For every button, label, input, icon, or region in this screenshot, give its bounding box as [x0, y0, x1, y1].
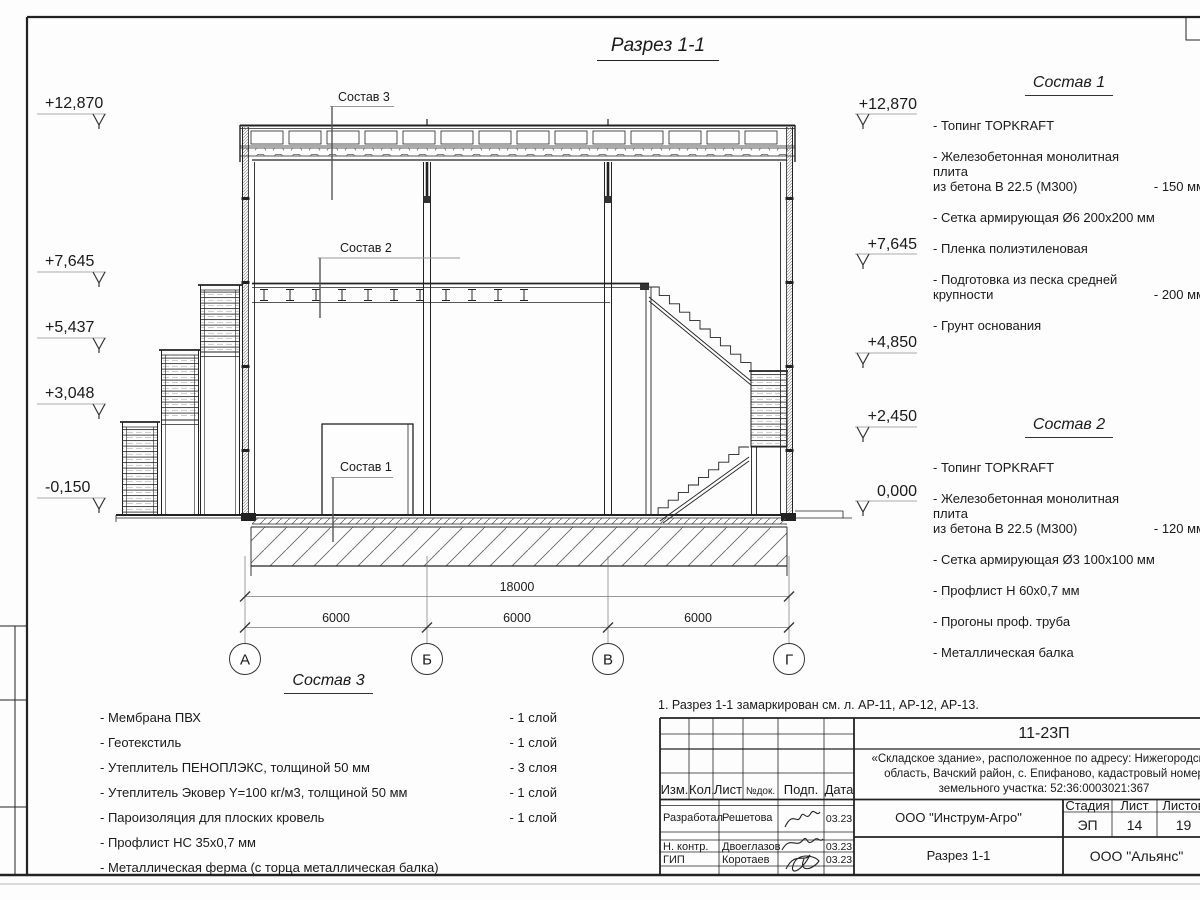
composition-item: - Грунт основания: [933, 318, 1200, 333]
dim-bay-1: 6000: [322, 611, 350, 625]
svg-text:0,000: 0,000: [877, 483, 917, 500]
column-B: [424, 162, 431, 515]
svg-text:+4,850: +4,850: [868, 334, 917, 351]
row-name-1: Двоеглазов: [722, 841, 780, 854]
composition-item: - Топинг TOPKRAFT: [933, 118, 1200, 133]
sostav-2-items: - Топинг TOPKRAFT- Железобетонная моноли…: [933, 460, 1200, 660]
left-wall: [241, 127, 256, 521]
composition-item-text: - Профлист НС 35x0,7 мм: [100, 835, 256, 850]
axis-label-G: Г: [785, 652, 793, 669]
row-date-2: 03.23: [824, 854, 854, 866]
composition-item-value: - 1 слой: [501, 735, 557, 750]
composition-item-text: - Профлист Н 60x0,7 мм: [933, 583, 1080, 598]
page-title: Разрез 1-1: [597, 35, 719, 61]
dimension-lines: [240, 556, 794, 643]
composition-item-text: - Сетка армирующая Ø3 100x100 мм: [933, 552, 1155, 567]
left-margin-stamp: [0, 626, 27, 875]
dim-overall: 18000: [500, 580, 535, 594]
composition-item: - Металлическая балка: [933, 645, 1200, 660]
composition-item-text: - Топинг TOPKRAFT: [933, 460, 1054, 475]
svg-text:+7,645: +7,645: [45, 253, 94, 270]
composition-item: - Железобетонная монолитная плита из бет…: [933, 491, 1200, 536]
composition-item-value: - 1 слой: [501, 785, 557, 800]
axis-label-B: Б: [422, 652, 432, 669]
right-wall: [781, 127, 797, 521]
composition-item-text: - Топинг TOPKRAFT: [933, 118, 1054, 133]
sheet-label: Лист: [1112, 800, 1157, 812]
sostav-1-block: Состав 1 - Топинг TOPKRAFT- Железобетонн…: [933, 74, 1200, 349]
svg-text:+7,645: +7,645: [868, 236, 917, 253]
composition-item: - Утеплитель Эковер Y=100 кг/м3, толщино…: [100, 785, 557, 800]
composition-item: - Железобетонная монолитная плита из бет…: [933, 149, 1200, 194]
composition-item-text: - Грунт основания: [933, 318, 1041, 333]
composition-item-value: - 1 слой: [501, 710, 557, 725]
sheet-number: 14: [1112, 817, 1157, 833]
leader-lines: [318, 107, 460, 543]
stepped-towers: [120, 285, 242, 515]
elevation-marks-right: +12,870 +7,645 +4,850 +2,450 0,000: [855, 96, 917, 516]
project-description: «Складское здание», расположенное по адр…: [856, 752, 1200, 797]
mezzanine-edge-post: [646, 287, 651, 515]
composition-item-text: - Пленка полиэтиленовая: [933, 241, 1088, 256]
svg-text:+12,870: +12,870: [45, 95, 103, 112]
row-role-2: ГИП: [663, 854, 685, 867]
composition-item: - Подготовка из песка средней крупности-…: [933, 272, 1200, 302]
svg-text:+5,437: +5,437: [45, 319, 94, 336]
dim-bay-3: 6000: [684, 611, 712, 625]
elevation-mark: +2,450: [855, 408, 917, 442]
axis-label-V: В: [603, 652, 613, 669]
mezzanine-floor: [252, 284, 649, 303]
composition-item-value: - 3 слоя: [502, 760, 557, 775]
composition-item: - Профлист НС 35x0,7 мм: [100, 835, 557, 850]
sheets-total: 19: [1157, 817, 1200, 833]
elevation-mark: 0,000: [855, 483, 917, 516]
leader-label-sostav2: Состав 2: [340, 241, 392, 255]
foundation-band: [251, 527, 787, 576]
composition-item-value: - 120 мм: [1146, 521, 1200, 536]
sostav-3-block: Состав 3 - Мембрана ПВХ- 1 слой- Геотекс…: [100, 672, 557, 885]
row-role-1: Н. контр.: [663, 841, 708, 854]
svg-text:-0,150: -0,150: [45, 479, 90, 496]
elevation-mark: +7,645: [37, 253, 106, 287]
composition-item-text: - Прогоны проф. труба: [933, 614, 1070, 629]
col-ndok: №док.: [743, 786, 778, 798]
composition-item-text: - Утеплитель ПЕНОПЛЭКС, толщиной 50 мм: [100, 760, 370, 775]
roof-deck: [246, 148, 789, 156]
elevation-mark: +4,850: [855, 334, 917, 368]
elevation-marks-left: +12,870 +7,645 +5,437 +3,048 -0,150: [37, 95, 106, 513]
signatures: [782, 811, 823, 871]
composition-item: - Металлическая ферма (с торца металличе…: [100, 860, 557, 875]
col-podp: Подп.: [778, 783, 824, 798]
sheets-label: Листов: [1157, 800, 1200, 812]
row-name-0: Решетова: [722, 812, 772, 825]
org-name: ООО "Инструм-Агро": [854, 811, 1063, 826]
elevation-mark: +12,870: [855, 96, 917, 129]
row-date-0: 03.23: [824, 813, 854, 825]
stair-landing: [749, 371, 788, 447]
axis-bubbles: [230, 644, 805, 675]
drawing-sheet: { "sheet": { "title": "Разрез 1-1", "not…: [0, 0, 1200, 900]
dim-bay-2: 6000: [503, 611, 531, 625]
svg-text:+2,450: +2,450: [868, 408, 917, 425]
stage-value: ЭП: [1063, 817, 1112, 833]
composition-item: - Мембрана ПВХ- 1 слой: [100, 710, 557, 725]
composition-item: - Топинг TOPKRAFT: [933, 460, 1200, 475]
col-kol: Кол.: [689, 783, 713, 798]
composition-item-text: - Подготовка из песка средней крупности: [933, 272, 1117, 302]
sostav-2-title: Состав 2: [1025, 416, 1113, 438]
composition-item-value: - 1 слой: [501, 810, 557, 825]
col-list: Лист: [713, 783, 743, 798]
composition-item: - Профлист Н 60x0,7 мм: [933, 583, 1200, 598]
svg-text:+3,048: +3,048: [45, 385, 94, 402]
ground-slab: [116, 511, 852, 524]
composition-item-text: - Железобетонная монолитная плита из бет…: [933, 149, 1146, 194]
col-izm: Изм.: [660, 783, 689, 798]
composition-item-text: - Пароизоляция для плоских кровель: [100, 810, 324, 825]
row-name-2: Коротаев: [722, 854, 770, 867]
elevation-mark: -0,150: [37, 479, 106, 513]
svg-text:+12,870: +12,870: [859, 96, 917, 113]
doc-number: 11-23П: [854, 725, 1200, 743]
composition-item-value: - 150 мм: [1146, 179, 1200, 194]
sostav-2-block: Состав 2 - Топинг TOPKRAFT- Железобетонн…: [933, 416, 1200, 676]
elevation-mark: +3,048: [37, 385, 106, 419]
drawing-name: Разрез 1-1: [854, 849, 1063, 864]
elevation-mark: +12,870: [37, 95, 106, 129]
composition-item-text: - Сетка армирующая Ø6 200x200 мм: [933, 210, 1155, 225]
elevation-mark: +7,645: [855, 236, 917, 269]
composition-item-value: - 200 мм: [1146, 287, 1200, 302]
leader-label-sostav1: Состав 1: [340, 460, 392, 474]
sostav-1-title: Состав 1: [1025, 74, 1113, 96]
axis-label-A: А: [240, 652, 250, 669]
stage-label: Стадия: [1063, 800, 1112, 812]
row-date-1: 03.23: [824, 841, 854, 853]
composition-item: - Сетка армирующая Ø6 200x200 мм: [933, 210, 1200, 225]
sostav-3-title: Состав 3: [284, 672, 372, 694]
composition-item: - Прогоны проф. труба: [933, 614, 1200, 629]
composition-item: - Утеплитель ПЕНОПЛЭКС, толщиной 50 мм- …: [100, 760, 557, 775]
stair-lower-flight: [658, 447, 756, 523]
row-role-0: Разработал: [663, 812, 723, 825]
composition-item-text: - Мембрана ПВХ: [100, 710, 201, 725]
drawing-note: 1. Разрез 1-1 замаркирован см. л. АР-11,…: [658, 698, 979, 712]
composition-item-text: - Геотекстиль: [100, 735, 181, 750]
roof-truss: [240, 119, 795, 162]
composition-item: - Геотекстиль- 1 слой: [100, 735, 557, 750]
col-data: Дата: [824, 783, 854, 798]
sostav-1-items: - Топинг TOPKRAFT- Железобетонная моноли…: [933, 118, 1200, 333]
company-name: ООО "Альянс": [1063, 848, 1200, 864]
composition-item: - Пленка полиэтиленовая: [933, 241, 1200, 256]
composition-item-text: - Металлическая балка: [933, 645, 1074, 660]
parapet-panels: [251, 131, 777, 144]
composition-item-text: - Металлическая ферма (с торца металличе…: [100, 860, 439, 875]
floor-ibeams: [260, 289, 528, 301]
sostav-3-items: - Мембрана ПВХ- 1 слой- Геотекстиль- 1 с…: [100, 710, 557, 875]
leader-label-sostav3: Состав 3: [338, 90, 390, 104]
composition-item-text: - Железобетонная монолитная плита из бет…: [933, 491, 1146, 536]
composition-item-text: - Утеплитель Эковер Y=100 кг/м3, толщино…: [100, 785, 407, 800]
composition-item: - Сетка армирующая Ø3 100x100 мм: [933, 552, 1200, 567]
elevation-mark: +5,437: [37, 319, 106, 353]
stair-upper-flight: [649, 287, 751, 385]
column-V: [605, 162, 612, 515]
composition-item: - Пароизоляция для плоских кровель- 1 сл…: [100, 810, 557, 825]
